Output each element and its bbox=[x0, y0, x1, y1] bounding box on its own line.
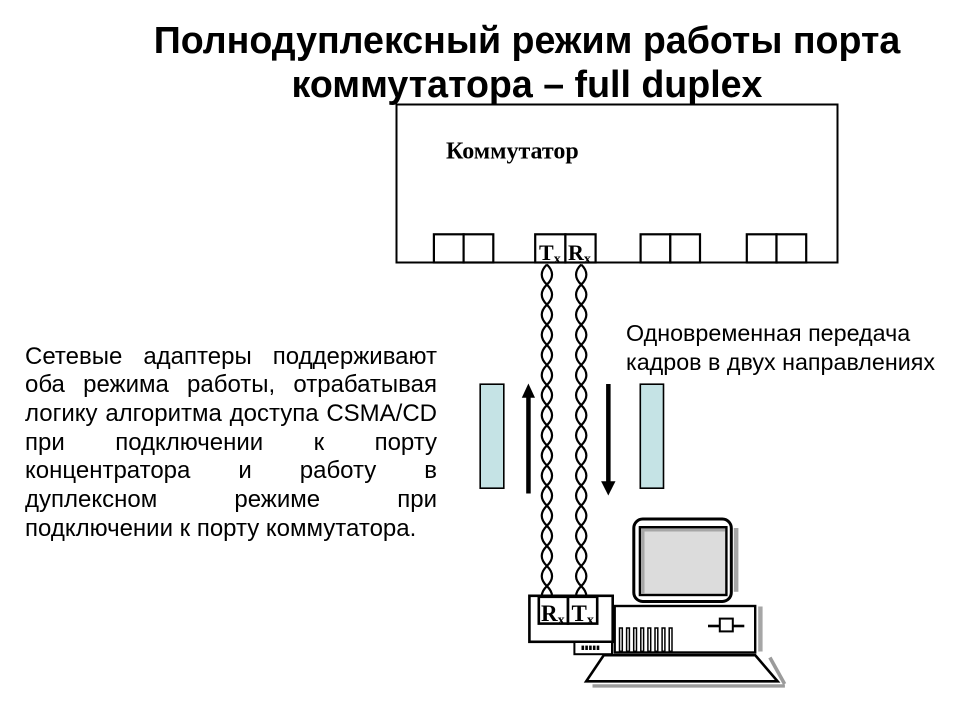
svg-text:Коммутатор: Коммутатор bbox=[446, 139, 579, 165]
